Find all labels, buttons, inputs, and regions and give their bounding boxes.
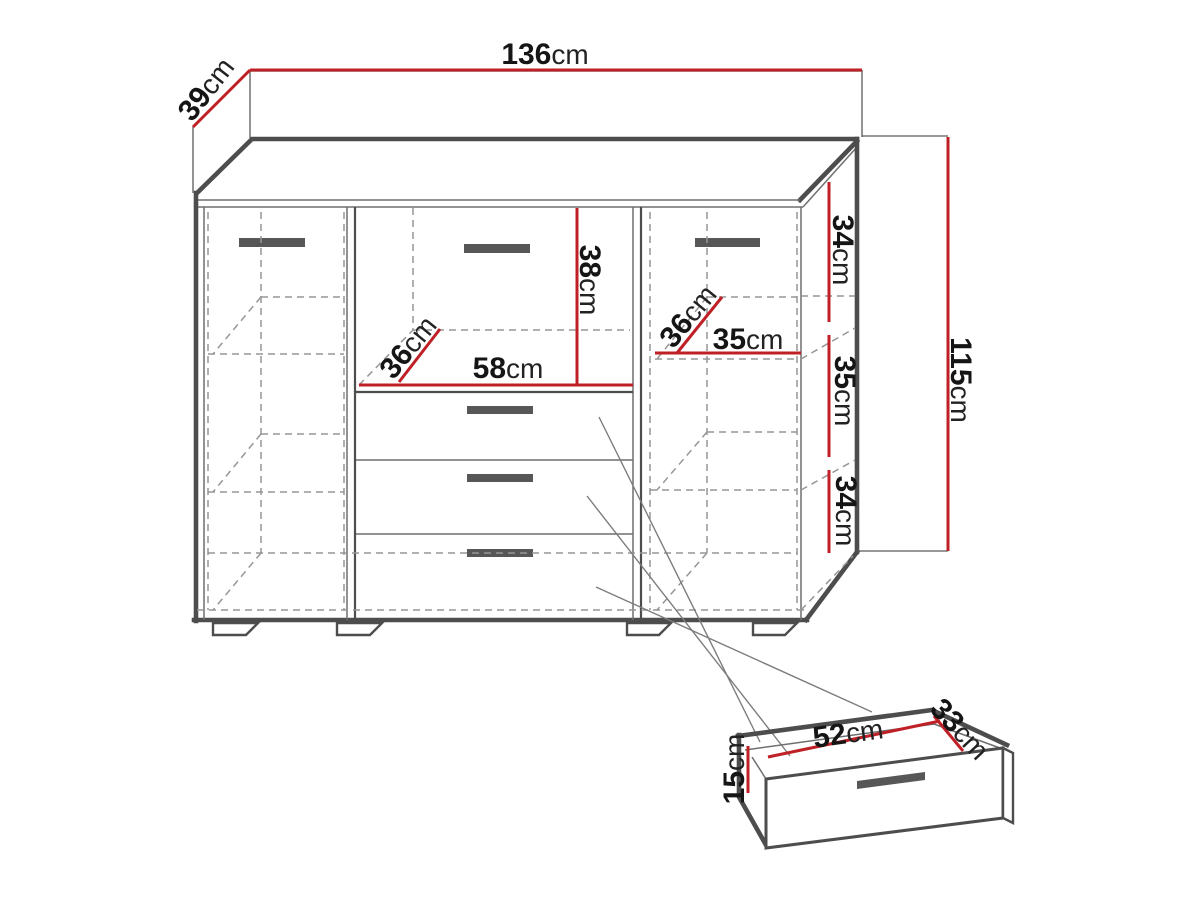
dim-label-shelf-width: 35cm <box>713 323 784 356</box>
dimension-labels: 136cm 39cm 115cm 34cm 35cm 34cm 38cm 58c… <box>171 38 996 805</box>
dim-label-niche-depth: 36cm <box>373 309 443 385</box>
cabinet-top <box>197 139 857 207</box>
foot <box>337 623 382 635</box>
feet <box>213 623 797 635</box>
dim-label-niche-height: 38cm <box>574 245 607 316</box>
back-panel <box>193 70 862 193</box>
dim-label-drawer-height: 15cm <box>718 734 751 805</box>
foot <box>213 623 258 635</box>
dim-label-drawer-width: 52cm <box>811 712 886 755</box>
furniture-dimension-diagram: 136cm 39cm 115cm 34cm 35cm 34cm 38cm 58c… <box>0 0 1200 900</box>
drawer-1-handle <box>467 406 533 414</box>
dim-label-right-bottom: 34cm <box>830 476 863 547</box>
dim-label-top-width: 136cm <box>501 38 588 71</box>
drawer-2-handle <box>467 474 533 482</box>
foot <box>627 623 671 635</box>
top-drawer-handle <box>464 244 530 253</box>
dimension-lines <box>193 70 963 793</box>
dim-label-niche-width: 58cm <box>473 352 544 385</box>
dim-label-right-mid: 35cm <box>829 356 862 427</box>
right-door-handle <box>695 238 760 247</box>
left-door-handle <box>239 238 305 247</box>
handles <box>239 238 760 557</box>
diagram-canvas: 136cm 39cm 115cm 34cm 35cm 34cm 38cm 58c… <box>0 0 1200 900</box>
dim-label-right-top: 34cm <box>827 215 860 286</box>
dim-label-total-height: 115cm <box>945 337 978 423</box>
detail-drawer-front-side <box>1003 748 1013 823</box>
foot <box>753 623 797 635</box>
detail-drawer-front <box>766 748 1003 848</box>
